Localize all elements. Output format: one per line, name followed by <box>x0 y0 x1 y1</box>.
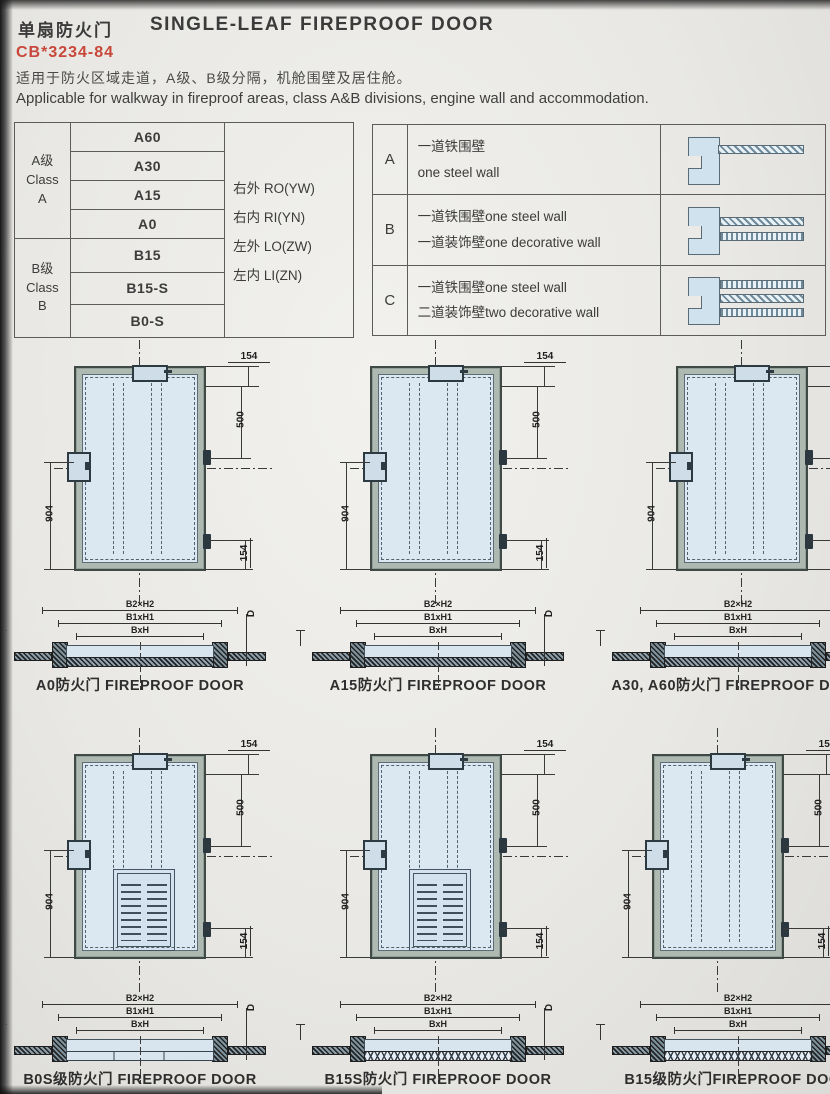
door-closer <box>710 753 746 770</box>
depth-label: D <box>246 1004 257 1011</box>
hinge-bottom <box>499 534 507 549</box>
wall-stub-right <box>228 1046 266 1055</box>
steel-wall-strip <box>718 145 804 154</box>
jamb-right <box>510 642 526 668</box>
dimension-line <box>248 366 249 386</box>
page-title-cn: 单扇防火门 <box>18 16 113 41</box>
hinge-bottom <box>203 534 211 549</box>
dim-500: 500 <box>532 405 543 435</box>
extension-line <box>340 462 370 463</box>
extension-line <box>807 458 830 459</box>
steel-wall-strip <box>720 294 804 303</box>
type-cell: B15-S <box>70 272 224 305</box>
stiffener-lines <box>113 383 124 554</box>
door-closer <box>132 753 168 770</box>
wall-tick <box>300 630 301 646</box>
extension-line <box>501 386 555 387</box>
extension-line <box>501 774 555 775</box>
wall-key-a: A <box>373 125 408 195</box>
louver-slats <box>121 879 141 941</box>
dim-b2h2-label: B2×H2 <box>424 993 452 1003</box>
dim-500: 500 <box>814 793 825 823</box>
louver-slats <box>443 879 463 941</box>
dim-b1h1-label: B1xH1 <box>724 1006 752 1016</box>
door-handle <box>645 840 669 870</box>
door-frame <box>676 366 808 571</box>
extension-line <box>783 846 829 847</box>
dim-bh: BxH <box>674 636 802 637</box>
dim-154-top: 154 <box>806 739 830 751</box>
profile-notch <box>688 156 702 169</box>
door-handle <box>67 452 91 482</box>
scan-edge-left <box>0 0 13 1094</box>
extension-line <box>807 366 830 367</box>
louver-slats <box>417 879 437 941</box>
dim-904: 904 <box>45 497 56 531</box>
orientation-li: 左内 LI(ZN) <box>233 264 353 284</box>
type-cell: A0 <box>70 210 224 239</box>
extension-line <box>783 957 830 958</box>
dim-b1h1-label: B1xH1 <box>126 612 154 622</box>
dim-bh: BxH <box>374 636 502 637</box>
hinge-bottom <box>781 922 789 937</box>
wall-stub-left <box>312 1046 350 1055</box>
wall-key-c: C <box>373 265 408 335</box>
wall-diagram-c <box>668 272 818 328</box>
fire-class-table: A级 Class A A60 右外 RO(YW) 右内 RI(YN) 左外 LO… <box>14 122 354 338</box>
wall-stub-right <box>228 652 266 661</box>
dim-904: 904 <box>341 497 352 531</box>
dim-bh-label: BxH <box>131 1019 149 1029</box>
dim-500: 500 <box>236 793 247 823</box>
class-b-line1: B级 <box>15 260 70 279</box>
dim-bh-label: BxH <box>429 625 447 635</box>
dim-154-bottom: 154 <box>535 538 547 568</box>
dim-b2h2: B2×H2 <box>42 1004 238 1005</box>
door-closer <box>428 365 464 382</box>
extension-line <box>44 957 74 958</box>
dim-b2h2: B2×H2 <box>42 610 238 611</box>
profile-notch <box>688 296 702 309</box>
extension-line <box>205 458 251 459</box>
orientation-ro: 右外 RO(YW) <box>233 177 353 197</box>
extension-line <box>501 957 549 958</box>
section-a15: B2×H2 B1xH1 BxH D A15防火门 FIREPROOF DOOR <box>338 598 538 690</box>
door-drawing-b0s: 154 500 154 904 <box>74 754 206 959</box>
dim-b1h1-label: B1xH1 <box>424 1006 452 1016</box>
extension-line <box>501 366 555 367</box>
dim-154-top: 154 <box>228 351 270 363</box>
wall-type-table: A 一道铁围壁 one steel wall B 一道铁围壁one steel … <box>372 124 826 336</box>
dim-904: 904 <box>647 497 658 531</box>
decorative-wall-strip <box>720 232 804 241</box>
section-a0: B2×H2 B1xH1 BxH D A0防火门 FIREPROOF DOOR <box>40 598 240 690</box>
wall-tick <box>600 630 601 646</box>
dim-b1h1: B1xH1 <box>656 623 820 624</box>
stiffener-lines <box>691 771 702 942</box>
extension-line <box>501 569 549 570</box>
section-b15s: B2×H2 B1xH1 BxH D B15S防火门 FIREPROOF DOOR <box>338 992 538 1084</box>
stiffener-lines <box>447 383 458 554</box>
dim-b2h2-label: B2×H2 <box>724 993 752 1003</box>
orientation-lo: 左外 LO(ZW) <box>233 235 353 255</box>
door-drawing-b15s: 154 500 154 904 <box>370 754 502 959</box>
extension-line <box>205 569 253 570</box>
decorative-wall-strip <box>720 280 804 289</box>
extension-line <box>340 957 370 958</box>
type-cell: B15 <box>70 239 224 273</box>
stiffener-lines <box>729 771 740 942</box>
wall-diagram-a-cell <box>660 125 825 195</box>
wall-stub-left <box>612 652 650 661</box>
profile-notch <box>688 226 702 239</box>
depth-dim-line <box>544 614 545 666</box>
class-a-line3: A <box>15 190 70 209</box>
jamb-right <box>212 1036 228 1062</box>
wall-stub-left <box>612 1046 650 1055</box>
door-drawing-a0: 154 500 154 904 <box>74 366 206 571</box>
dim-904: 904 <box>341 885 352 919</box>
extension-line <box>622 957 652 958</box>
door-handle <box>363 452 387 482</box>
dim-b1h1-label: B1xH1 <box>424 612 452 622</box>
door-handle <box>669 452 693 482</box>
door-leaf <box>82 762 198 951</box>
standard-number: CB*3234-84 <box>16 44 114 62</box>
dim-bh-label: BxH <box>729 625 747 635</box>
extension-line <box>783 774 830 775</box>
decorative-wall-strip <box>720 308 804 317</box>
wall-stub-left <box>312 652 350 661</box>
extension-line <box>501 458 547 459</box>
door-leaf <box>378 374 494 563</box>
dimension-line <box>544 754 545 774</box>
extension-line <box>622 850 652 851</box>
type-cell: A60 <box>70 123 224 152</box>
wall-stub-right <box>826 652 830 661</box>
door-frame-profile <box>688 277 720 325</box>
wall-stub-right <box>826 1046 830 1055</box>
stiffener-lines <box>409 383 420 554</box>
type-cell: B0-S <box>70 305 224 338</box>
wall-stub-left <box>14 1046 52 1055</box>
dim-154-bottom: 154 <box>535 926 547 956</box>
catalog-page: 单扇防火门 SINGLE-LEAF FIREPROOF DOOR CB*3234… <box>0 0 830 1094</box>
dim-b2h2: B2×H2 <box>340 610 536 611</box>
dim-bh-label: BxH <box>429 1019 447 1029</box>
depth-dim-line <box>544 1008 545 1060</box>
class-b-group-cell: B级 Class B <box>15 239 71 338</box>
extension-line <box>807 540 830 541</box>
orientation-cell: 右外 RO(YW) 右内 RI(YN) 左外 LO(ZW) 左内 LI(ZN) <box>225 123 354 338</box>
type-cell: A15 <box>70 181 224 210</box>
extension-line <box>646 569 676 570</box>
dim-154-top: 154 <box>228 739 270 751</box>
door-closer <box>132 365 168 382</box>
section-caption: A0防火门 FIREPROOF DOOR <box>36 674 244 695</box>
extension-line <box>501 846 547 847</box>
wall-desc-b: 一道铁围壁one steel wall 一道装饰壁one decorative … <box>407 195 660 265</box>
dim-bh: BxH <box>76 636 204 637</box>
jamb-right <box>212 642 228 668</box>
extension-line <box>783 754 830 755</box>
section-a30-a60: B2×H2 B1xH1 BxH D A30, A60防火门 FIREPROOF … <box>638 598 830 690</box>
dim-500: 500 <box>236 405 247 435</box>
wall-desc-a-line1: 一道铁围壁 <box>418 134 650 160</box>
dimension-line <box>544 366 545 386</box>
class-b-line3: B <box>15 297 70 316</box>
door-frame <box>652 754 784 959</box>
extension-line <box>205 957 253 958</box>
wall-stub-right <box>526 1046 564 1055</box>
wall-desc-c-line1: 一道铁围壁one steel wall <box>418 275 650 301</box>
section-caption: A30, A60防火门 FIREPROOF DOOR <box>611 674 830 695</box>
extension-line <box>44 462 74 463</box>
door-handle <box>67 840 91 870</box>
dim-b1h1: B1xH1 <box>656 1017 820 1018</box>
door-frame <box>370 754 502 959</box>
dim-b1h1: B1xH1 <box>58 623 222 624</box>
stiffener-lines <box>715 383 726 554</box>
extension-line <box>340 569 370 570</box>
door-drawing-a30-a60: 154 500 154 904 <box>676 366 808 571</box>
class-b-line2: Class <box>15 279 70 298</box>
dim-154-bottom: 154 <box>239 538 251 568</box>
extension-line <box>205 774 259 775</box>
scan-edge-bottom <box>0 1085 382 1094</box>
extension-line <box>44 850 74 851</box>
depth-label: D <box>246 610 257 617</box>
stiffener-lines <box>753 383 764 554</box>
wall-key-b: B <box>373 195 408 265</box>
wall-diagram-c-cell <box>660 265 825 335</box>
dim-500: 500 <box>532 793 543 823</box>
wall-tick <box>600 1024 601 1040</box>
extension-line <box>205 366 259 367</box>
louver-vent <box>113 869 175 951</box>
wall-desc-b-line2: 一道装饰壁one decorative wall <box>418 230 650 256</box>
dim-b2h2: B2×H2 <box>340 1004 536 1005</box>
door-closer <box>734 365 770 382</box>
wall-diagram-a <box>668 132 818 188</box>
description-en: Applicable for walkway in fireproof area… <box>16 90 649 107</box>
dim-bh-label: BxH <box>729 1019 747 1029</box>
depth-dim-line <box>246 614 247 666</box>
door-leaf <box>82 374 198 563</box>
dim-b1h1-label: B1xH1 <box>724 612 752 622</box>
depth-dim-line <box>246 1008 247 1060</box>
dim-154-bottom: 154 <box>239 926 251 956</box>
dim-154-bottom: 154 <box>817 926 829 956</box>
jamb-right <box>810 1036 826 1062</box>
extension-line <box>205 846 251 847</box>
dim-b2h2-label: B2×H2 <box>126 599 154 609</box>
door-handle <box>363 840 387 870</box>
page-title-en: SINGLE-LEAF FIREPROOF DOOR <box>150 14 494 36</box>
dim-b2h2-label: B2×H2 <box>424 599 452 609</box>
orientation-ri: 右内 RI(YN) <box>233 206 353 226</box>
dim-b1h1: B1xH1 <box>356 623 520 624</box>
wall-diagram-b <box>668 202 818 258</box>
louver-slats <box>147 879 167 941</box>
door-leaf <box>660 762 776 951</box>
extension-line <box>205 754 259 755</box>
extension-line <box>340 850 370 851</box>
dim-b2h2: B2×H2 <box>640 1004 830 1005</box>
dim-b2h2: B2×H2 <box>640 610 830 611</box>
dim-904: 904 <box>45 885 56 919</box>
dim-b2h2-label: B2×H2 <box>724 599 752 609</box>
extension-line <box>44 569 74 570</box>
dimension-line <box>248 754 249 774</box>
dim-154-top: 154 <box>524 351 566 363</box>
wall-desc-c: 一道铁围壁one steel wall 二道装饰壁two decorative … <box>407 265 660 335</box>
wall-diagram-b-cell <box>660 195 825 265</box>
jamb-right <box>510 1036 526 1062</box>
dimension-line <box>826 754 827 774</box>
hinge-bottom <box>499 922 507 937</box>
hinge-bottom <box>203 922 211 937</box>
dim-b1h1-label: B1xH1 <box>126 1006 154 1016</box>
louver-vent <box>409 869 471 951</box>
door-frame <box>74 754 206 959</box>
wall-desc-a: 一道铁围壁 one steel wall <box>407 125 660 195</box>
wall-stub-right <box>526 652 564 661</box>
door-frame <box>74 366 206 571</box>
dim-bh: BxH <box>374 1030 502 1031</box>
dim-b2h2-label: B2×H2 <box>126 993 154 1003</box>
extension-line <box>807 569 830 570</box>
wall-desc-a-line2: one steel wall <box>418 160 650 186</box>
door-frame-profile <box>688 137 720 185</box>
class-a-group-cell: A级 Class A <box>15 123 71 239</box>
class-a-line2: Class <box>15 171 70 190</box>
door-leaf <box>378 762 494 951</box>
jamb-right <box>810 642 826 668</box>
depth-label: D <box>544 1004 555 1011</box>
scan-edge-top <box>0 0 830 10</box>
extension-line <box>501 754 555 755</box>
extension-line <box>646 462 676 463</box>
section-caption: B15级防火门FIREPROOF DOOR <box>624 1068 830 1089</box>
extension-line <box>807 386 830 387</box>
dim-bh-label: BxH <box>131 625 149 635</box>
type-cell: A30 <box>70 152 224 181</box>
class-a-line1: A级 <box>15 152 70 171</box>
dim-b1h1: B1xH1 <box>58 1017 222 1018</box>
wall-stub-left <box>14 652 52 661</box>
wall-desc-c-line2: 二道装饰壁two decorative wall <box>418 300 650 326</box>
door-frame-profile <box>688 207 720 255</box>
description-cn: 适用于防火区域走道，A级、B级分隔，机舱围壁及居住舱。 <box>16 68 412 88</box>
door-drawing-b15: 154 500 154 904 <box>652 754 784 959</box>
extension-line <box>205 386 259 387</box>
door-closer <box>428 753 464 770</box>
door-frame <box>370 366 502 571</box>
dim-904: 904 <box>623 885 634 919</box>
door-leaf <box>684 374 800 563</box>
section-b15: B2×H2 B1xH1 BxH D B15级防火门FIREPROOF DOOR <box>638 992 830 1084</box>
stiffener-lines <box>151 383 162 554</box>
depth-label: D <box>544 610 555 617</box>
wall-tick <box>300 1024 301 1040</box>
dim-bh: BxH <box>76 1030 204 1031</box>
dim-bh: BxH <box>674 1030 802 1031</box>
section-caption: A15防火门 FIREPROOF DOOR <box>330 674 547 695</box>
hinge-bottom <box>805 534 813 549</box>
steel-wall-strip <box>720 217 804 226</box>
dim-b1h1: B1xH1 <box>356 1017 520 1018</box>
section-b0s: B2×H2 B1xH1 BxH D B0S级防火门 FIREPROOF DOOR <box>40 992 240 1084</box>
wall-desc-b-line1: 一道铁围壁one steel wall <box>418 204 650 230</box>
door-drawing-a15: 154 500 154 904 <box>370 366 502 571</box>
dim-154-top: 154 <box>524 739 566 751</box>
